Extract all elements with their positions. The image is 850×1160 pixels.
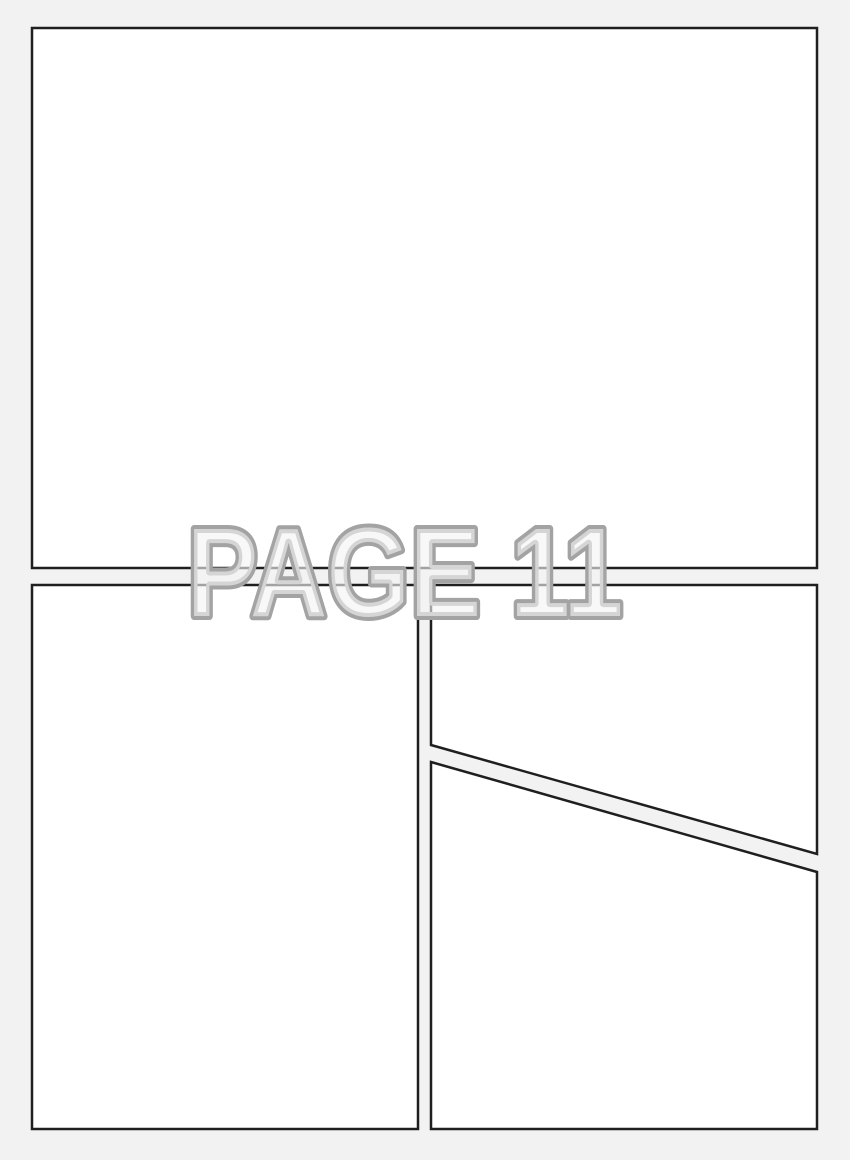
page-canvas: PAGE 11 <box>0 0 850 1160</box>
panel-top <box>32 28 817 568</box>
comic-page-template: PAGE 11 <box>0 0 850 1160</box>
page-number-label: PAGE 11 <box>187 502 623 643</box>
panel-bottom-left <box>32 585 418 1129</box>
